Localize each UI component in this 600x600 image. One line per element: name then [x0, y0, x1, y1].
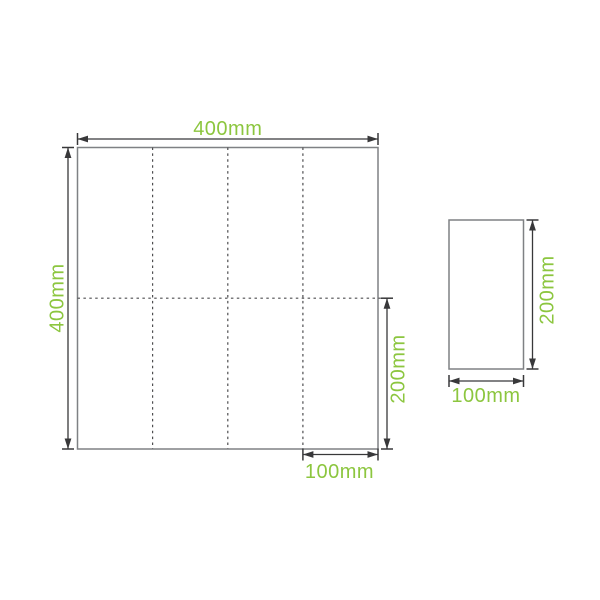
half-height-label: 200mm: [388, 334, 410, 403]
arrow-down-icon: [65, 439, 72, 450]
arrow-left-icon: [78, 136, 89, 143]
arrow-up-icon: [529, 220, 536, 231]
folded-height-label: 200mm: [537, 255, 559, 324]
arrow-right-icon: [368, 451, 379, 458]
dimension-half-height: 200mm: [381, 298, 410, 449]
dimension-panel-width: 100mm: [303, 449, 378, 484]
dimension-diagram: 400mm 400mm 200mm 100mm 200mm: [0, 0, 600, 600]
arrow-right-icon: [368, 136, 379, 143]
sheet-height-label: 400mm: [47, 263, 69, 332]
dimension-folded-height: 200mm: [527, 220, 559, 369]
arrow-up-icon: [384, 298, 391, 309]
panel-width-label: 100mm: [305, 461, 374, 483]
diagram-canvas: 400mm 400mm 200mm 100mm 200mm: [0, 0, 600, 600]
dimension-folded-width: 100mm: [449, 375, 524, 407]
arrow-left-icon: [449, 378, 460, 385]
sheet-width-label: 400mm: [193, 118, 262, 140]
arrow-left-icon: [303, 451, 314, 458]
arrow-up-icon: [65, 148, 72, 159]
folded-width-label: 100mm: [451, 385, 520, 407]
dimension-sheet-width: 400mm: [78, 118, 379, 145]
dimension-sheet-height: 400mm: [47, 148, 75, 450]
arrow-down-icon: [529, 359, 536, 370]
folded-sheet-outline: [449, 220, 524, 369]
arrow-down-icon: [384, 439, 391, 450]
arrow-right-icon: [513, 378, 524, 385]
